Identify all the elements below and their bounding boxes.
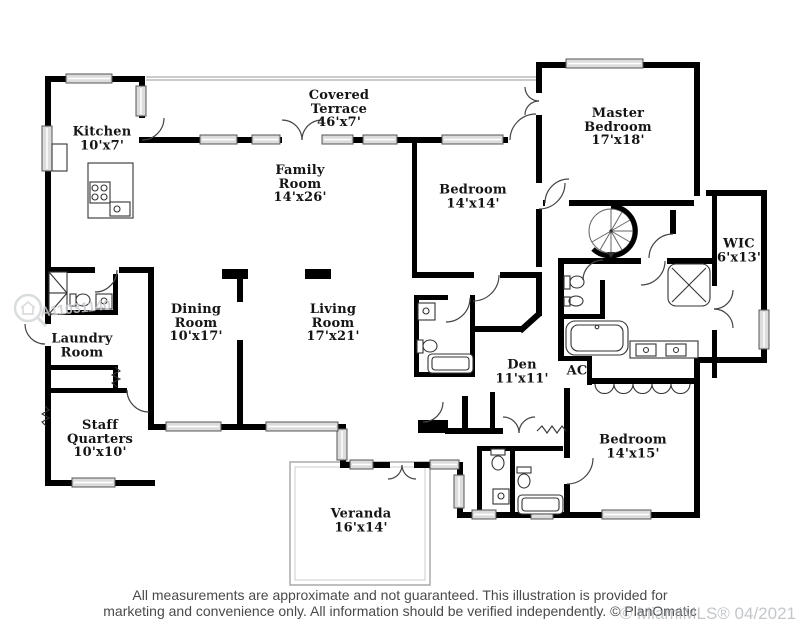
floor-plan-graphic: [0, 0, 800, 630]
room-label-living-room: Living Room17'x21': [303, 303, 363, 344]
kitchen-sink-icon: [110, 202, 130, 216]
room-label-dining-room: Dining Room10'x17': [166, 303, 226, 344]
magnifier-house-logo-icon: [8, 290, 52, 334]
room-label-bedroom-14x14: Bedroom14'x14': [428, 184, 518, 211]
terrace-edge-lines: [146, 77, 536, 80]
stove-icon: [90, 182, 110, 203]
closet-scallops: [42, 367, 690, 433]
room-label-covered-terrace: Covered Terrace46'x7': [303, 89, 375, 130]
master-bath-fixtures: [564, 264, 710, 358]
room-label-kitchen: Kitchen10'x7': [67, 126, 137, 153]
room-label-ac: AC: [562, 364, 592, 378]
room-label-veranda: Veranda16'x14': [316, 508, 406, 535]
room-label-wic: WIC6'x13': [709, 238, 769, 265]
room-label-family-room: Family Room14'x26': [270, 164, 330, 205]
opening-squiggle: [537, 426, 566, 433]
bath-b-fixtures: [491, 449, 563, 514]
room-label-staff-quarters: Staff Quarters10'x10': [64, 419, 136, 460]
room-label-master-bedroom: Master Bedroom17'x18': [578, 107, 658, 148]
mls-date-watermark: © MiamiMLS® 04/2021: [620, 604, 796, 624]
room-label-laundry-room: Laundry Room: [48, 333, 116, 360]
fridge-icon: [52, 144, 67, 171]
spiral-stair-icon: [589, 206, 635, 258]
room-label-bedroom-14x15: Bedroom14'x15': [588, 434, 678, 461]
floor-plan-page: Kitchen10'x7' Covered Terrace46'x7' Fami…: [0, 0, 800, 630]
disclaimer-line-1: All measurements are approximate and not…: [0, 588, 800, 604]
room-label-den: Den11'x11': [487, 359, 557, 386]
